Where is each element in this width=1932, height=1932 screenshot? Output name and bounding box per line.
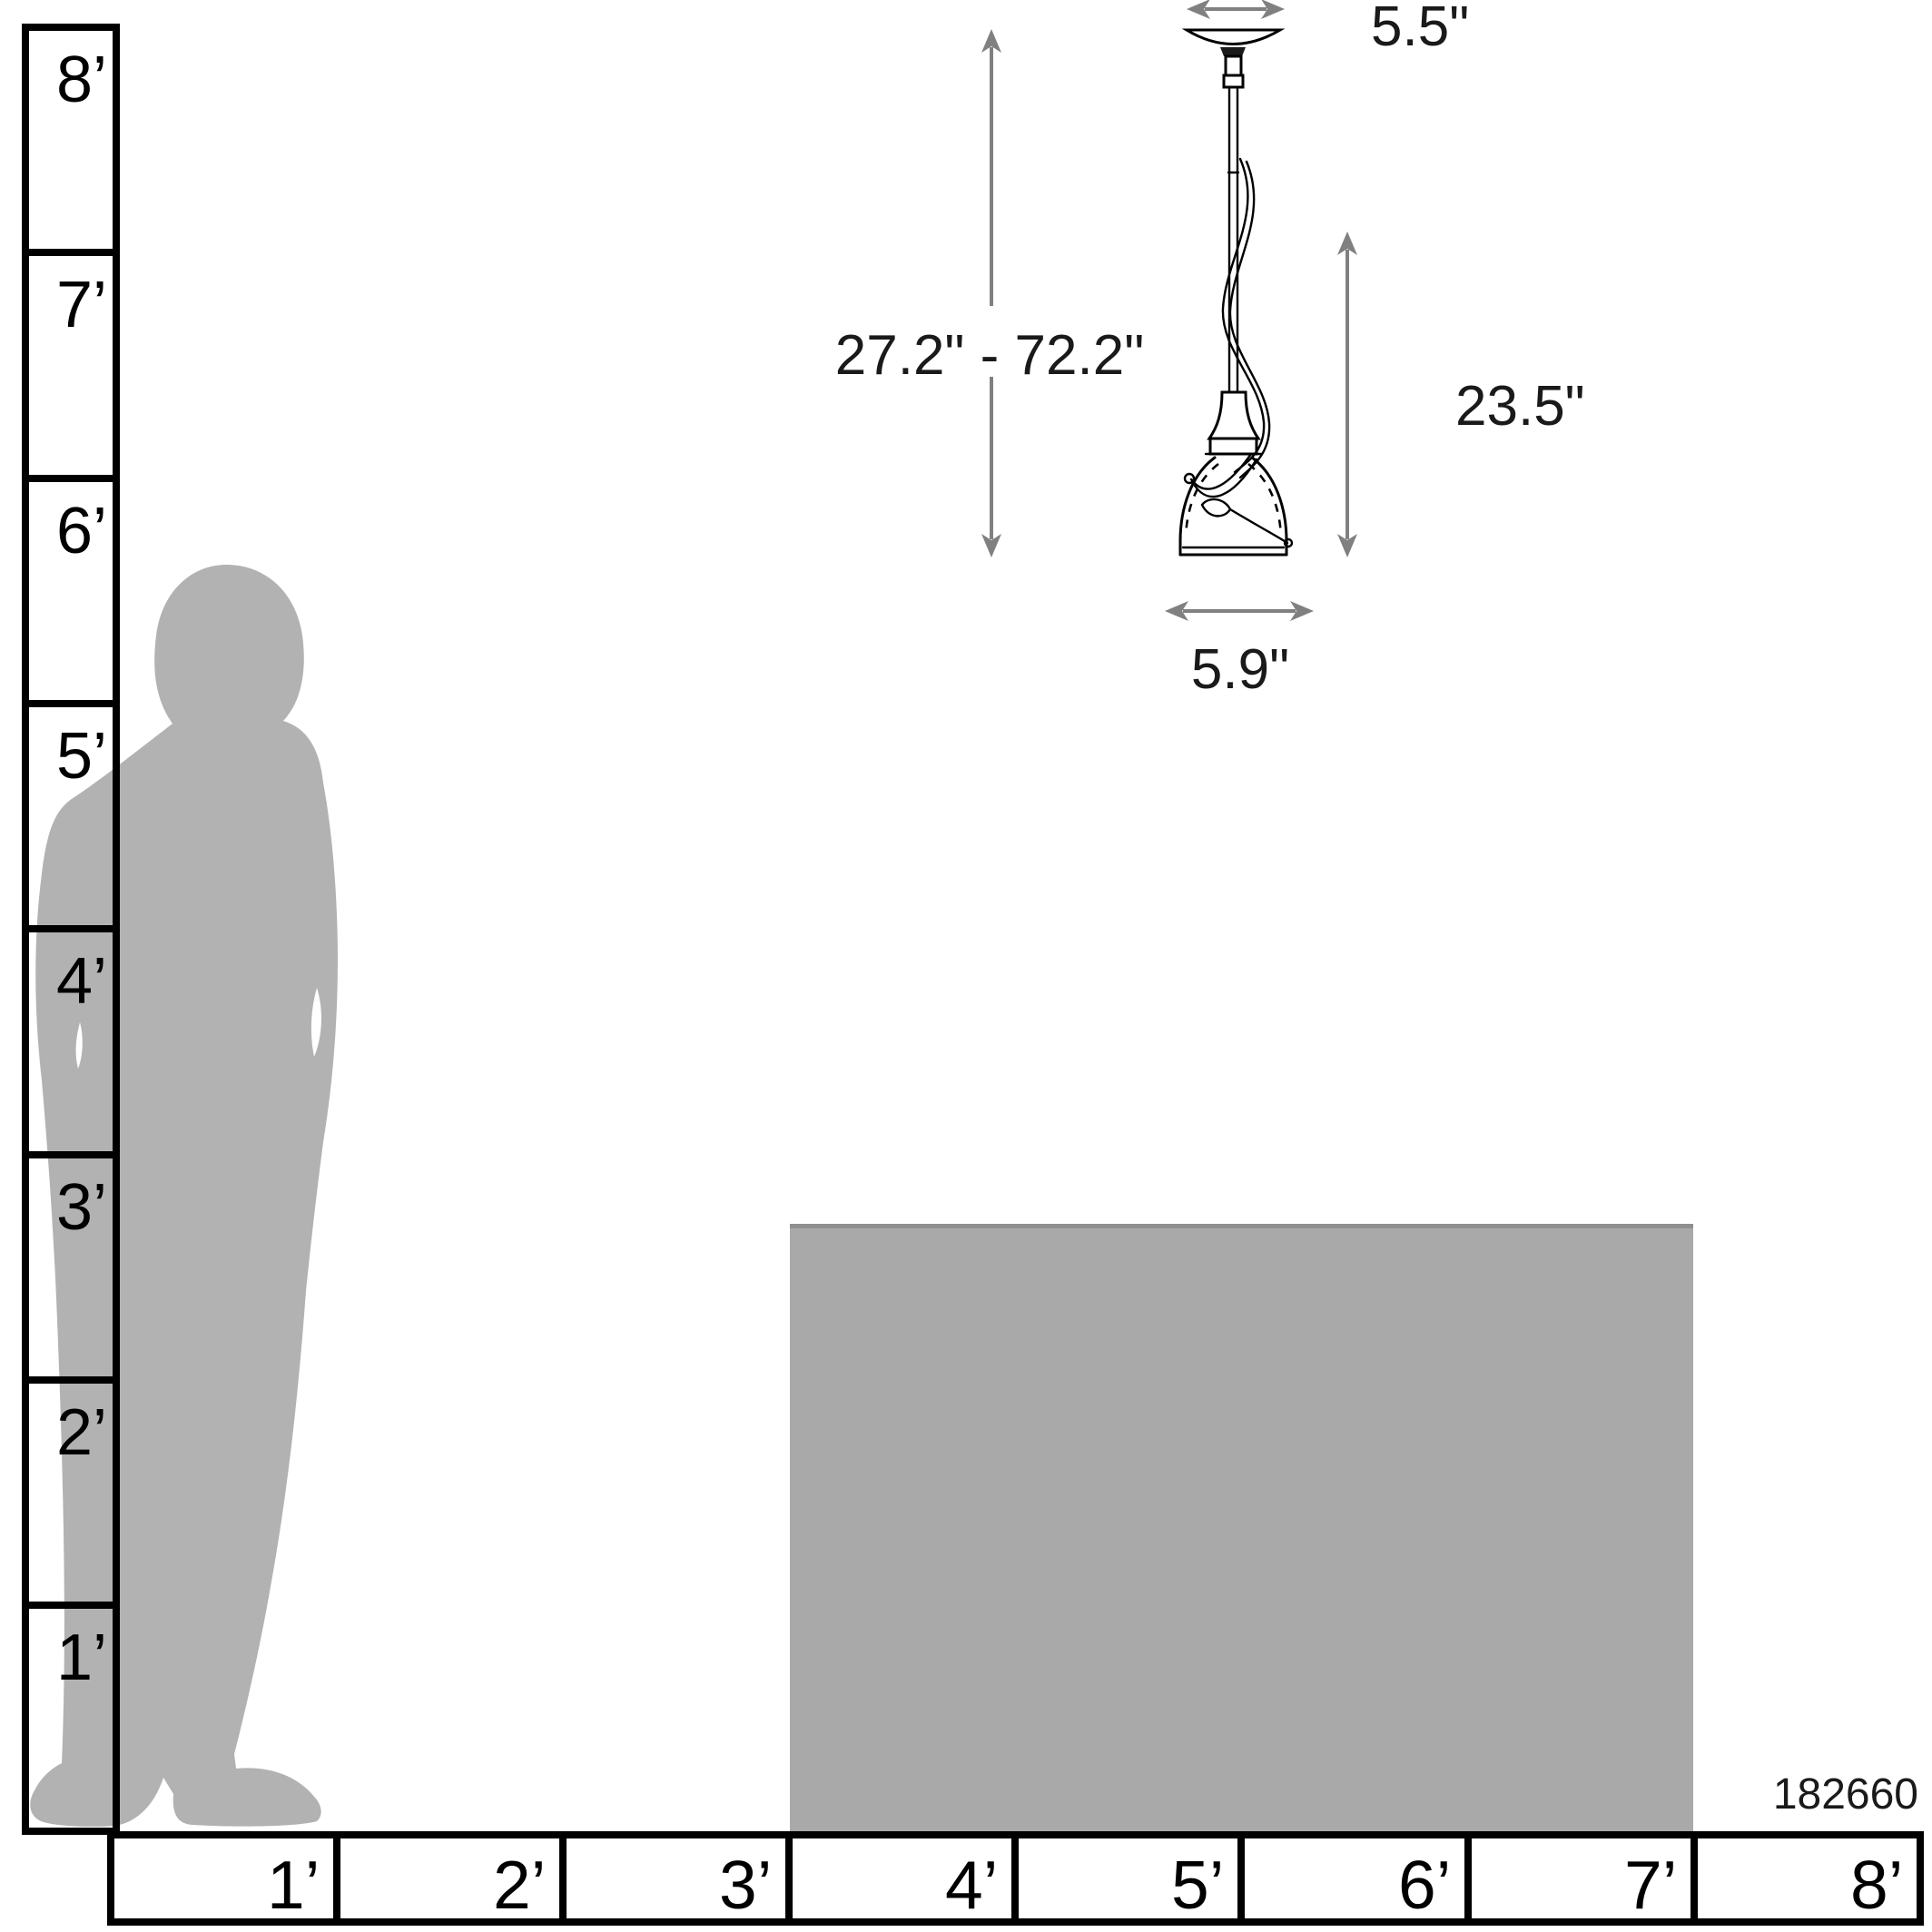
horizontal-ruler-label: 6’	[1398, 1847, 1451, 1923]
horizontal-ruler-label: 7’	[1624, 1847, 1677, 1923]
vertical-ruler-label: 4’	[56, 945, 107, 1018]
shade-seam-right	[1248, 464, 1281, 536]
horizontal-ruler: 1’ 2’ 3’ 4’ 5’ 6’ 7’ 8’	[111, 1835, 1920, 1923]
horizontal-ruler-label: 4’	[945, 1847, 998, 1923]
shade-left-outline	[1180, 458, 1215, 555]
table-rect	[790, 1224, 1693, 1835]
shade-width-label: 5.9"	[1191, 638, 1289, 701]
cord-bead	[1185, 474, 1194, 483]
dimension-hanging-height: 27.2" - 72.2"	[835, 29, 1144, 557]
vertical-ruler-label: 8’	[56, 44, 107, 116]
canopy-width-label: 5.5"	[1371, 0, 1469, 58]
stem	[1226, 56, 1241, 75]
dimension-shade-width: 5.9"	[1165, 601, 1314, 701]
leaf-stem	[1230, 509, 1287, 543]
scale-diagram: 8’ 7’ 6’ 5’ 4’ 3’ 2’ 1’ 1’ 2’ 3’ 4’ 5’ 6…	[0, 0, 1932, 1932]
vertical-ruler-label: 6’	[56, 495, 107, 567]
horizontal-ruler-label: 2’	[493, 1847, 546, 1923]
stem-band	[1224, 75, 1243, 87]
socket-collar	[1210, 439, 1257, 454]
canopy-outline	[1187, 30, 1280, 44]
horizontal-ruler-label: 3’	[719, 1847, 772, 1923]
vertical-ruler-label: 2’	[56, 1396, 107, 1469]
product-number: 182660	[1773, 1770, 1918, 1819]
vertical-ruler-label: 7’	[56, 269, 107, 341]
vertical-ruler-label: 1’	[56, 1621, 107, 1694]
dimension-fixture-height: 23.5"	[1337, 232, 1585, 557]
pendant-fixture-drawing	[1180, 30, 1292, 555]
horizontal-ruler-label: 5’	[1171, 1847, 1224, 1923]
hanging-height-label: 27.2" - 72.2"	[835, 324, 1144, 387]
vertical-ruler-label: 3’	[56, 1171, 107, 1244]
horizontal-ruler-label: 1’	[267, 1847, 320, 1923]
leaf-ornament	[1202, 499, 1230, 516]
vertical-ruler-label: 5’	[56, 720, 107, 793]
socket-cup	[1209, 392, 1258, 439]
table-top-edge	[790, 1224, 1693, 1228]
fixture-height-label: 23.5"	[1455, 375, 1585, 438]
table-block	[790, 1224, 1693, 1835]
horizontal-ruler-label: 8’	[1850, 1847, 1903, 1923]
diagram-canvas: 8’ 7’ 6’ 5’ 4’ 3’ 2’ 1’ 1’ 2’ 3’ 4’ 5’ 6…	[0, 0, 1932, 1932]
